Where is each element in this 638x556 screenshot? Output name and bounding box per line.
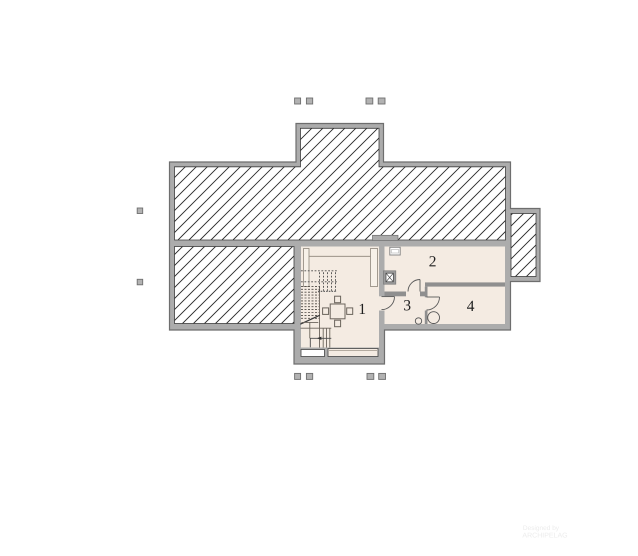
svg-text:ARCHIPELAG: ARCHIPELAG xyxy=(522,532,567,539)
svg-text:Designed by: Designed by xyxy=(523,525,560,532)
